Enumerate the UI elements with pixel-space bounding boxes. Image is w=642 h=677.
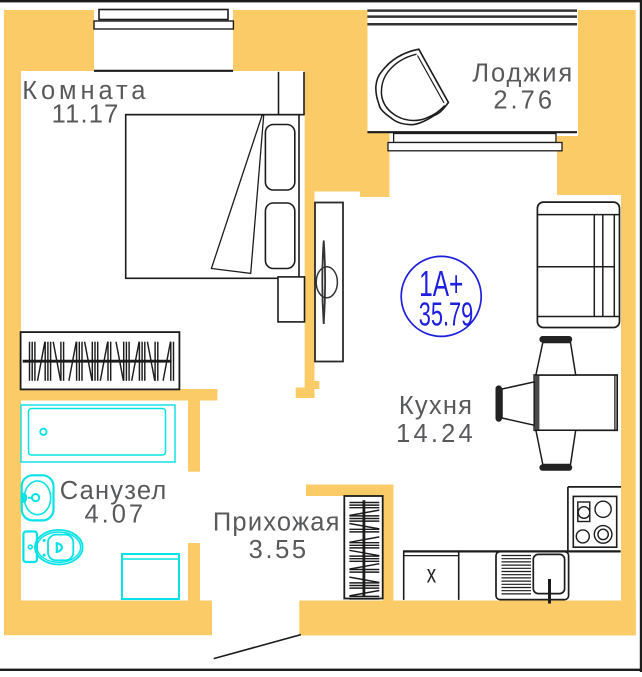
svg-text:Лоджия: Лоджия <box>472 60 574 88</box>
svg-text:4.07: 4.07 <box>84 501 146 529</box>
svg-text:11.17: 11.17 <box>52 101 120 129</box>
svg-text:14.24: 14.24 <box>396 420 476 448</box>
svg-text:35.79: 35.79 <box>419 296 473 333</box>
svg-text:Кухня: Кухня <box>399 392 473 420</box>
svg-text:3.55: 3.55 <box>249 536 309 564</box>
svg-text:2.76: 2.76 <box>493 86 555 114</box>
svg-text:Прихожая: Прихожая <box>213 509 341 537</box>
svg-text:x: x <box>427 558 437 588</box>
